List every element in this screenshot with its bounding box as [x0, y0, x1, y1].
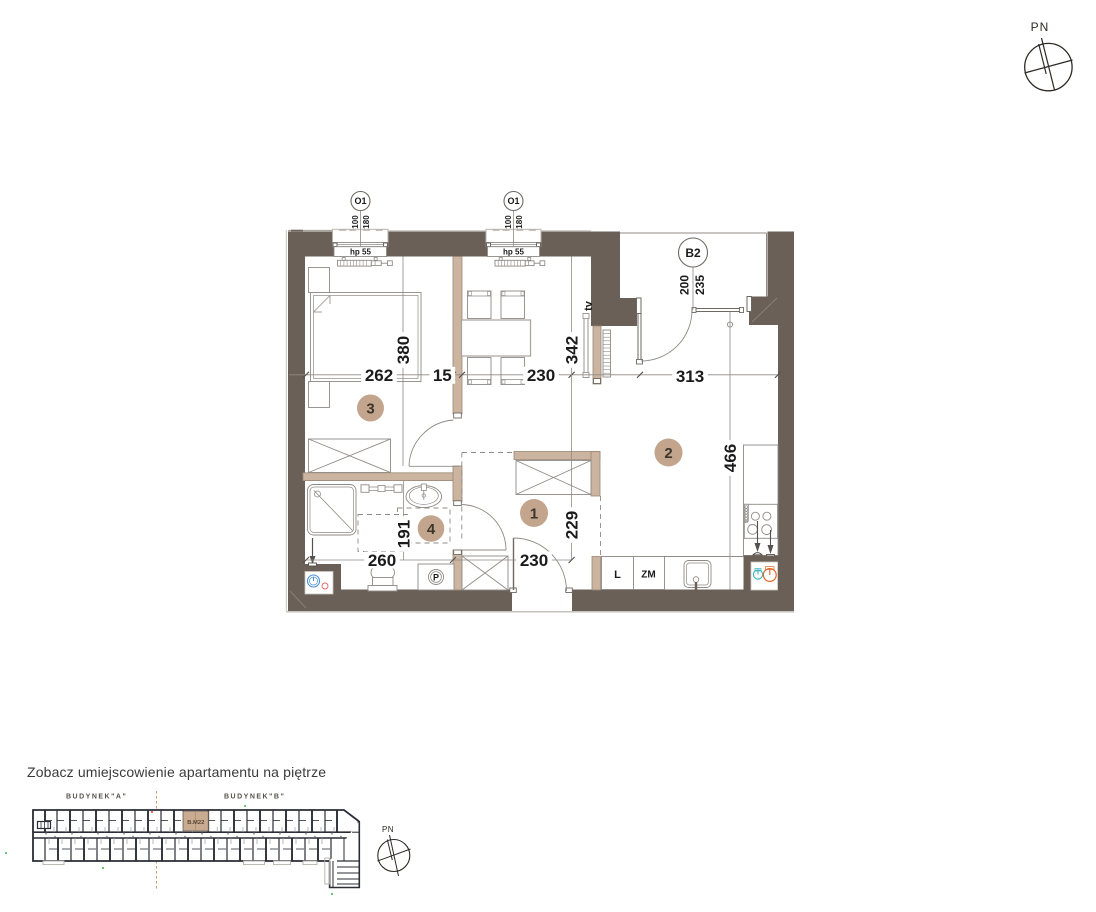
- svg-text:hp 55: hp 55: [503, 248, 524, 257]
- svg-text:PN: PN: [382, 825, 394, 834]
- svg-text:Zobacz umiejscowienie apartame: Zobacz umiejscowienie apartamentu na pię…: [27, 764, 326, 780]
- svg-text:4: 4: [427, 521, 436, 538]
- svg-text:260: 260: [368, 551, 396, 570]
- svg-text:L: L: [614, 569, 621, 581]
- svg-text:BUDYNEK"A": BUDYNEK"A": [66, 794, 127, 801]
- svg-text:342: 342: [562, 336, 581, 364]
- svg-text:B2: B2: [685, 246, 701, 260]
- svg-text:235: 235: [693, 275, 707, 295]
- svg-text:1: 1: [530, 506, 538, 523]
- svg-text:380: 380: [394, 336, 413, 364]
- svg-text:3: 3: [366, 401, 374, 418]
- svg-text:B.M22: B.M22: [187, 820, 204, 826]
- svg-text:262: 262: [365, 366, 393, 385]
- svg-text:15: 15: [433, 366, 452, 385]
- svg-text:P: P: [433, 572, 439, 582]
- svg-text:230: 230: [527, 366, 555, 385]
- svg-text:tv: tv: [583, 300, 595, 311]
- svg-text:PN: PN: [1031, 20, 1050, 34]
- svg-text:191: 191: [394, 520, 413, 548]
- svg-text:hp 55: hp 55: [350, 248, 371, 257]
- svg-text:180: 180: [515, 215, 524, 229]
- svg-text:100: 100: [351, 215, 360, 229]
- svg-text:2: 2: [664, 445, 672, 462]
- svg-text:O1: O1: [354, 196, 366, 206]
- svg-text:BUDYNEK"B": BUDYNEK"B": [224, 794, 285, 801]
- svg-text:313: 313: [676, 367, 704, 386]
- svg-text:180: 180: [362, 215, 371, 229]
- svg-text:O1: O1: [507, 196, 519, 206]
- svg-text:230: 230: [520, 551, 548, 570]
- svg-text:ZM: ZM: [641, 570, 655, 581]
- svg-text:200: 200: [678, 275, 692, 295]
- svg-text:100: 100: [504, 215, 513, 229]
- svg-text:466: 466: [721, 444, 740, 472]
- svg-text:229: 229: [562, 511, 581, 539]
